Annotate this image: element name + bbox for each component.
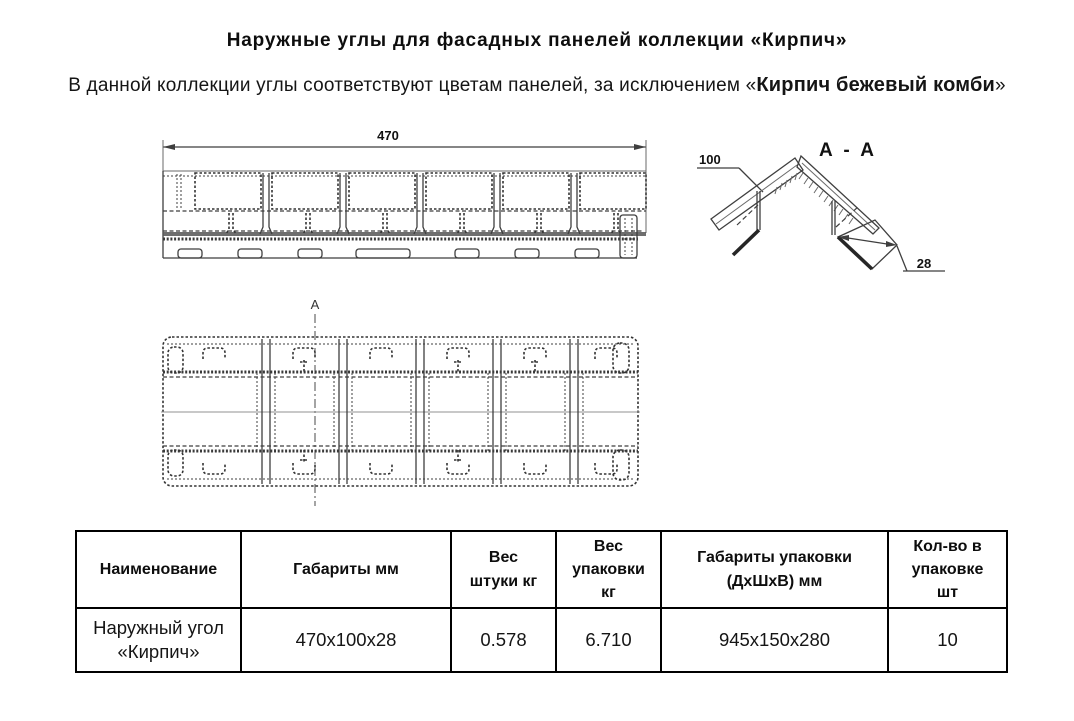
mortar-grooves xyxy=(226,173,621,234)
section-title-label: A - A xyxy=(819,140,877,161)
col-header-dimensions: Габариты мм xyxy=(241,531,451,608)
col-header-pack-weight: Вес упаковки кг xyxy=(556,531,661,608)
width-dimension: 100 xyxy=(697,152,763,192)
spec-sheet-page: Наружные углы для фасадных панелей колле… xyxy=(0,0,1074,721)
front-view-drawing: 470 xyxy=(158,127,650,269)
section-view-drawing: A - A 100 xyxy=(685,125,1055,295)
subtitle-text: В данной коллекции углы соответствуют цв… xyxy=(68,75,756,96)
length-dimension-label: 470 xyxy=(377,128,399,143)
section-cut-line: A xyxy=(311,297,320,506)
subtitle-exception-name: Кирпич бежевый комби xyxy=(756,74,995,96)
table-header-row: Наименование Габариты мм Вес штуки кг Ве… xyxy=(76,531,1007,608)
col-header-name: Наименование xyxy=(76,531,241,608)
col-header-pack-qty: Кол-во в упаковке шт xyxy=(888,531,1007,608)
page-title: Наружные углы для фасадных панелей колле… xyxy=(0,30,1074,52)
col-header-unit-weight: Вес штуки кг xyxy=(451,531,556,608)
thickness-dimension-label: 28 xyxy=(917,256,931,271)
spec-table: Наименование Габариты мм Вес штуки кг Ве… xyxy=(75,530,1008,673)
page-subtitle: В данной коллекции углы соответствуют цв… xyxy=(0,74,1074,97)
subtitle-closing-quote: » xyxy=(995,75,1006,96)
return-flange xyxy=(838,220,897,269)
section-mark-label: A xyxy=(311,297,320,312)
cell-product-name: Наружный угол «Кирпич» xyxy=(76,608,241,672)
base-feet xyxy=(178,249,599,258)
table-row: Наружный угол «Кирпич» 470х100х28 0.578 … xyxy=(76,608,1007,672)
cell-unit-weight: 0.578 xyxy=(451,608,556,672)
cell-pack-weight: 6.710 xyxy=(556,608,661,672)
cell-pack-qty: 10 xyxy=(888,608,1007,672)
plan-view-drawing: A xyxy=(158,293,650,508)
right-end-cap xyxy=(620,215,637,258)
brick-texture xyxy=(177,173,646,209)
cell-pack-dimensions: 945х150х280 xyxy=(661,608,888,672)
width-dimension-label: 100 xyxy=(699,152,721,167)
thickness-dimension: 28 xyxy=(897,246,945,271)
plan-outline xyxy=(161,337,640,486)
length-dimension: 470 xyxy=(163,128,646,233)
cell-dimensions: 470х100х28 xyxy=(241,608,451,672)
col-header-pack-dimensions: Габариты упаковки (ДхШхВ) мм xyxy=(661,531,888,608)
corner-body-outline xyxy=(163,171,646,258)
